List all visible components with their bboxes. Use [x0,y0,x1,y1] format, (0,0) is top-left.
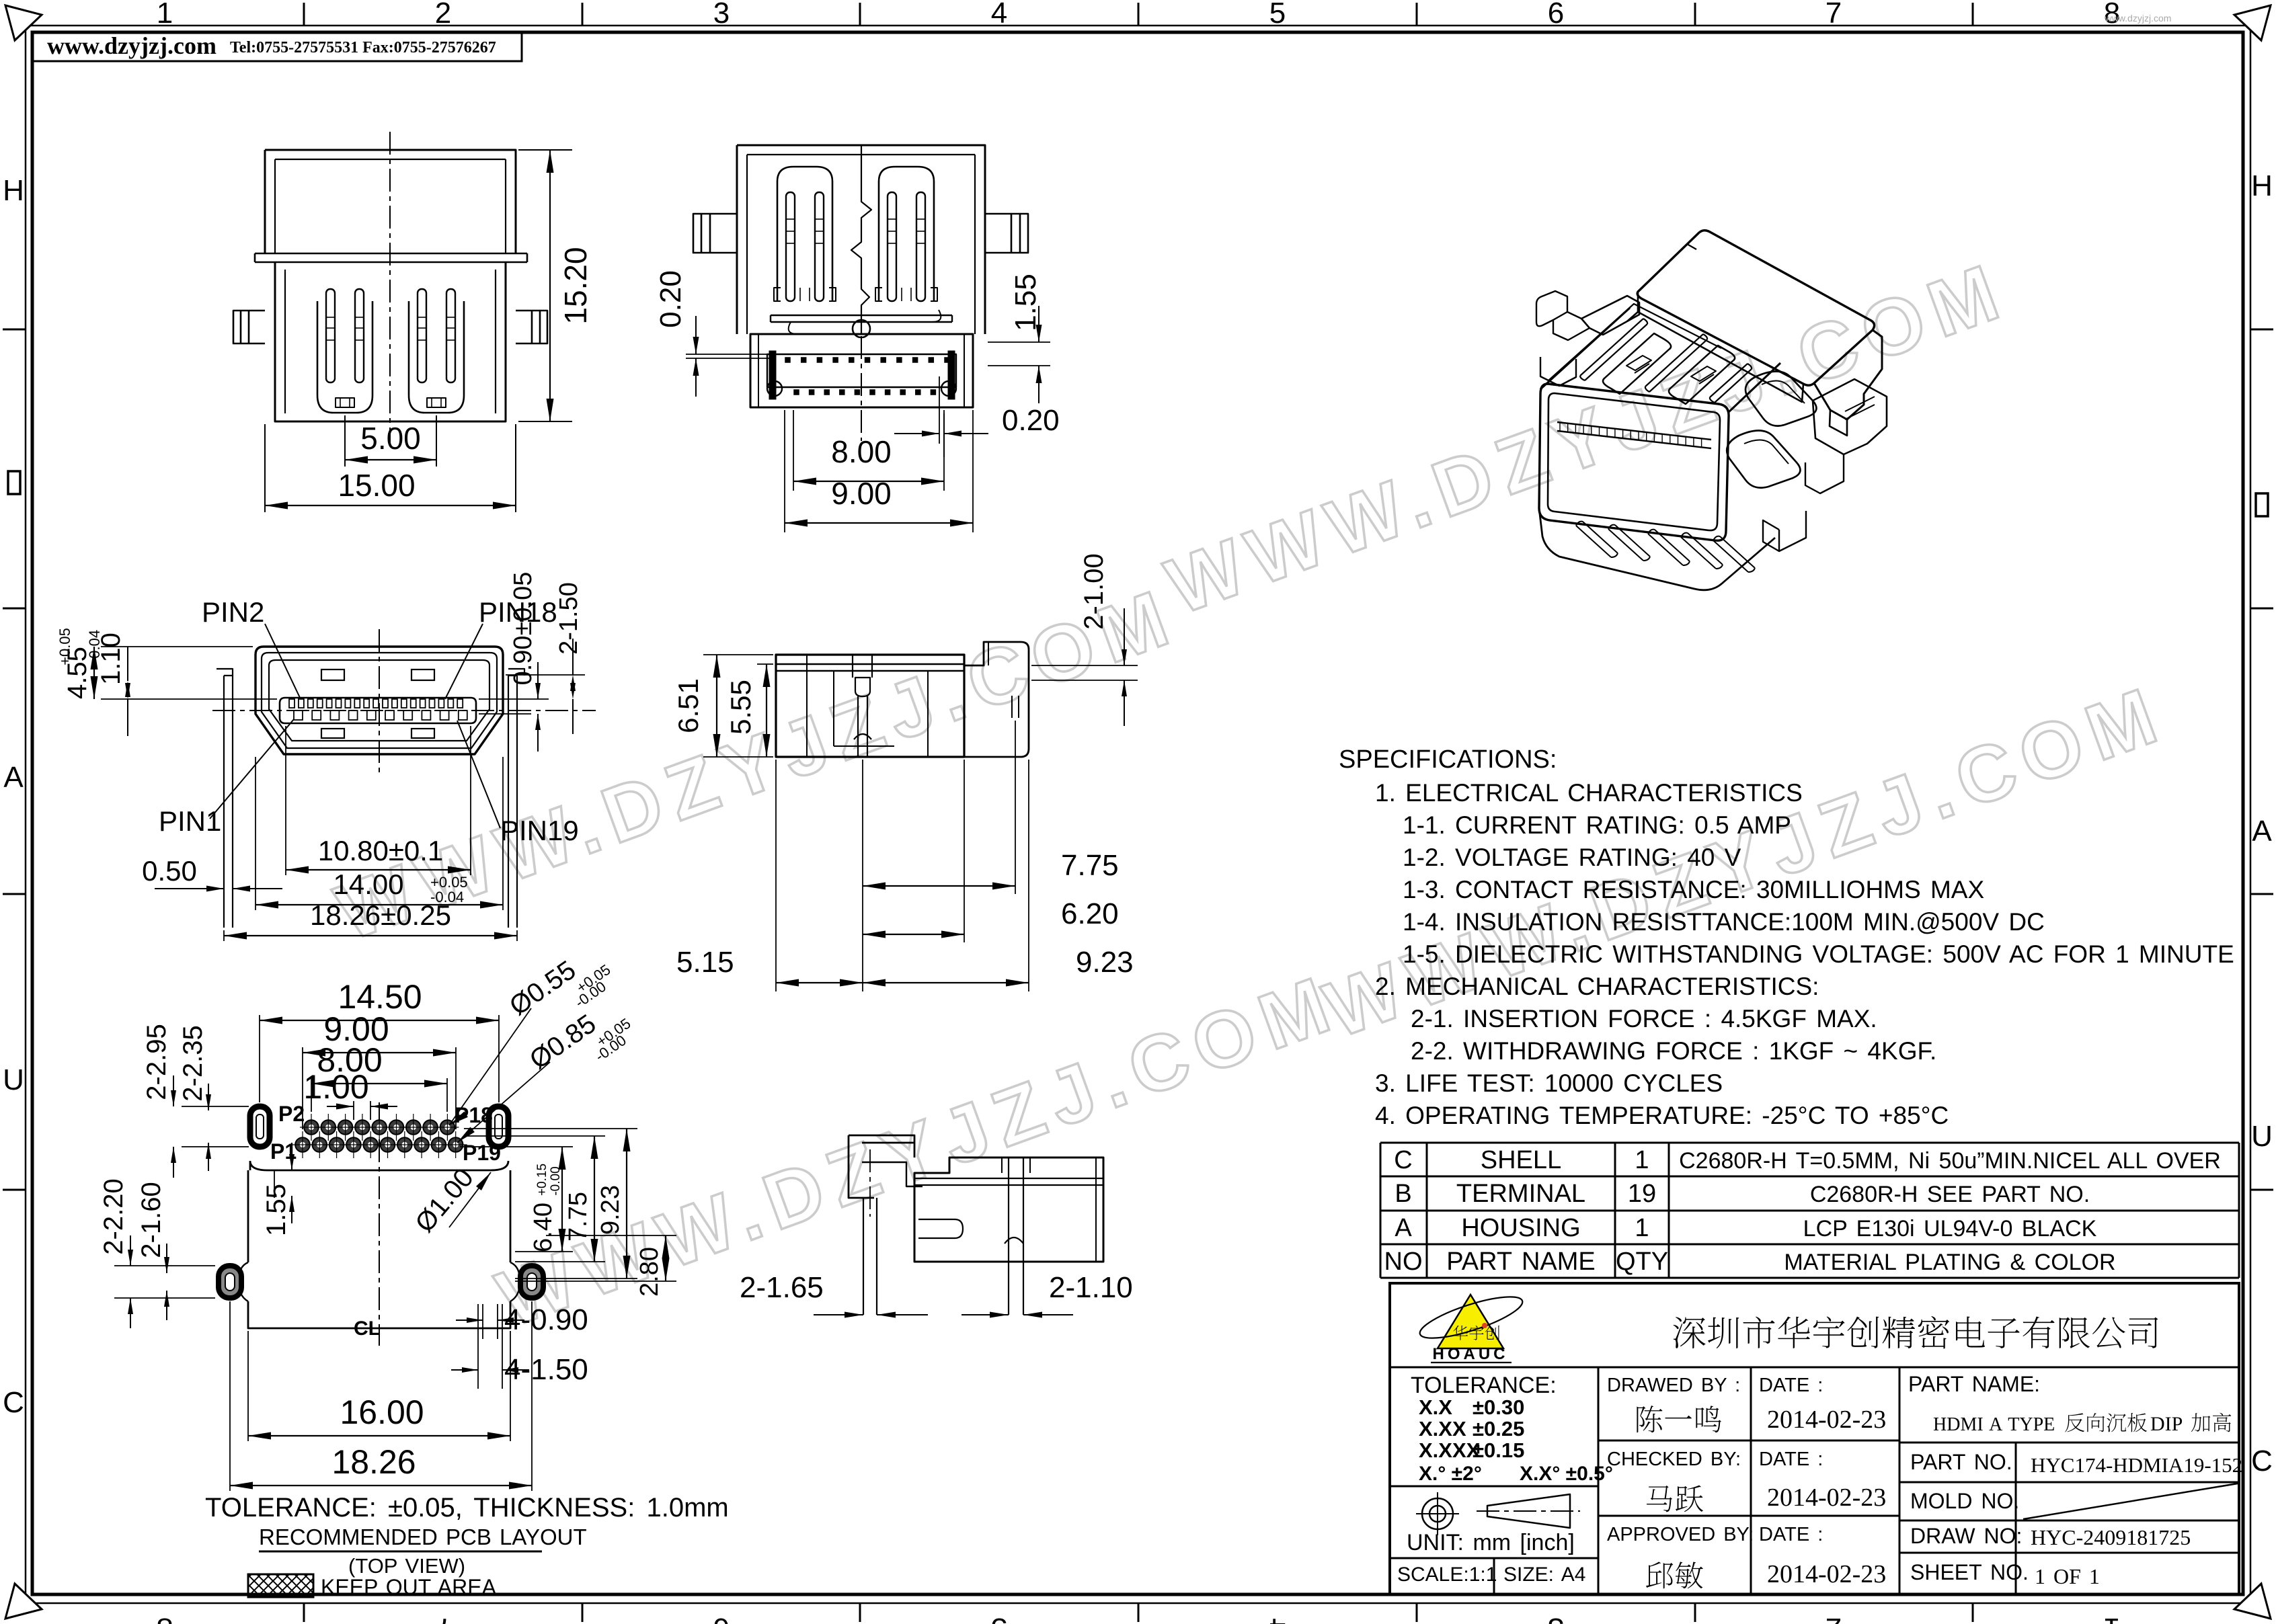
svg-text:1: 1 [1635,1146,1649,1174]
svg-text:8.00: 8.00 [831,434,892,469]
svg-text:C2680R-H SEE PART NO.: C2680R-H SEE PART NO. [1810,1182,2090,1207]
svg-text:1. ELECTRICAL CHARACTERISTIC: 1. ELECTRICAL CHARACTERISTICS [1375,779,1803,807]
svg-text:5: 5 [991,1612,1007,1624]
svg-text:2-2.95: 2-2.95 [142,1024,171,1100]
svg-text:1.00: 1.00 [303,1068,368,1106]
svg-text:6.40: 6.40 [529,1203,557,1252]
svg-text:H: H [3,174,24,207]
svg-text:CL: CL [354,1317,381,1340]
svg-text:2-2.35: 2-2.35 [178,1025,208,1101]
svg-text:18.26: 18.26 [331,1443,416,1481]
svg-text:5.15: 5.15 [676,946,734,979]
svg-text:X.XX: X.XX [1419,1417,1466,1440]
svg-text:14.00: 14.00 [333,868,403,900]
svg-text:7: 7 [1826,0,1842,30]
svg-text:UNIT: mm [inch]: UNIT: mm [inch] [1407,1530,1575,1555]
svg-text:PIN1: PIN1 [159,805,221,837]
svg-text:+0.15: +0.15 [535,1164,549,1196]
svg-text:NO: NO [1384,1248,1423,1276]
svg-text:B: B [1395,1180,1411,1208]
svg-text:X.X° ±0.5°: X.X° ±0.5° [1520,1463,1613,1485]
svg-text:SHELL: SHELL [1481,1146,1561,1174]
svg-text:1.10: 1.10 [96,633,126,685]
svg-text:PART NO.: PART NO. [1910,1450,2012,1474]
svg-text:9.00: 9.00 [831,476,892,511]
svg-text:2-2. WITHDRAWING FORCE : 1: 2-2. WITHDRAWING FORCE : 1KGF ~ 4KGF. [1411,1037,1936,1065]
svg-text:MATERIAL PLATING & COLOR: MATERIAL PLATING & COLOR [1784,1250,2115,1275]
svg-text:7.75: 7.75 [1061,849,1119,882]
svg-text:3. LIFE TEST: 10000 CYCLES: 3. LIFE TEST: 10000 CYCLES [1375,1069,1723,1097]
svg-text:1-2. VOLTAGE RATING: 40 V: 1-2. VOLTAGE RATING: 40 V [1403,844,1741,871]
svg-text:8: 8 [157,1612,173,1624]
svg-text:5.55: 5.55 [725,680,756,735]
svg-text:2: 2 [435,0,451,30]
svg-text:MOLD NO.: MOLD NO. [1910,1489,2019,1513]
svg-text:X.° ±2°: X.° ±2° [1419,1463,1482,1485]
svg-text:2-1.60: 2-1.60 [136,1182,166,1258]
svg-text:4: 4 [991,0,1007,30]
svg-text:H: H [2251,169,2273,202]
svg-text:1-3. CONTACT RESISTANCE: 30: 1-3. CONTACT RESISTANCE: 30MILLIOHMS MAX [1403,876,1984,903]
svg-text:HOUSING: HOUSING [1461,1214,1580,1242]
svg-text:CHECKED BY:: CHECKED BY: [1607,1449,1741,1470]
svg-text:SHEET NO.: SHEET NO. [1910,1560,2029,1584]
svg-text:SIZE: A4: SIZE: A4 [1503,1564,1585,1586]
svg-text:±0.25: ±0.25 [1473,1417,1524,1440]
svg-text:APPROVED BY:: APPROVED BY: [1607,1524,1754,1545]
svg-text:3: 3 [713,0,730,30]
svg-text:2.80: 2.80 [635,1247,664,1297]
svg-text:5: 5 [1269,0,1286,30]
svg-text:HYC174-HDMIA19-152: HYC174-HDMIA19-152 [2031,1453,2242,1477]
svg-text:-0.00: -0.00 [549,1166,563,1195]
svg-text:PIN2: PIN2 [202,596,264,628]
svg-text:X.X: X.X [1419,1395,1452,1419]
svg-text:HOAUC: HOAUC [1433,1345,1509,1363]
svg-text:1: 1 [1635,1214,1649,1242]
svg-text:0.50: 0.50 [142,855,197,887]
svg-text:(TOP VIEW): (TOP VIEW) [348,1554,465,1578]
svg-text:A: A [3,761,24,794]
svg-text:P2: P2 [278,1102,305,1126]
svg-text:PIN19: PIN19 [500,815,579,846]
svg-text:A: A [1395,1214,1412,1242]
svg-text:DATE :: DATE : [1759,1375,1823,1396]
svg-text:SCALE:1:1: SCALE:1:1 [1397,1564,1497,1586]
svg-text:2-2.20: 2-2.20 [99,1178,128,1254]
svg-text:DRAWED BY :: DRAWED BY : [1607,1375,1740,1396]
svg-text:19: 19 [1628,1180,1656,1208]
svg-text:0.20: 0.20 [1002,404,1060,437]
svg-text:U: U [2251,1120,2273,1153]
svg-text:KEEP OUT AREA: KEEP OUT AREA [321,1575,497,1599]
svg-text:PART NAME: PART NAME [1446,1248,1596,1276]
svg-text:www.dzyjzj.com: www.dzyjzj.com [2105,13,2172,24]
svg-text:2014-02-23: 2014-02-23 [1767,1484,1886,1512]
svg-text:7: 7 [435,1612,451,1624]
svg-text:+0.05: +0.05 [56,628,73,665]
svg-text:15.00: 15.00 [338,468,415,503]
svg-text:QTY: QTY [1616,1248,1668,1276]
svg-text:1.55: 1.55 [262,1184,291,1236]
svg-text:SPECIFICATIONS:: SPECIFICATIONS: [1339,745,1557,774]
svg-text:6.20: 6.20 [1061,897,1119,930]
svg-text:3: 3 [1548,1612,1564,1624]
svg-text:1-4. INSULATION RESISTTANCE:: 1-4. INSULATION RESISTTANCE:100M MIN.@50… [1403,908,2045,936]
svg-text:C: C [1394,1146,1412,1174]
svg-text:1: 1 [2104,1612,2120,1624]
svg-text:5.00: 5.00 [360,421,421,456]
svg-text:0.90±0.05: 0.90±0.05 [509,572,537,686]
svg-text:Tel:0755-27575531 Fax:0755-27: Tel:0755-27575531 Fax:0755-27576267 [230,39,496,56]
svg-text:1.55: 1.55 [1009,274,1042,331]
svg-text:U: U [3,1063,24,1096]
svg-text:2-1.10: 2-1.10 [1049,1271,1133,1304]
svg-text:DATE :: DATE : [1759,1449,1823,1470]
svg-text:www.dzyjzj.com: www.dzyjzj.com [47,32,217,59]
svg-text:7.75: 7.75 [564,1192,592,1242]
svg-text:6.51: 6.51 [672,678,704,733]
svg-text:A: A [2252,815,2272,848]
svg-text:TOLERANCE: ±0.05, THICKNESS:: TOLERANCE: ±0.05, THICKNESS: 1.0mm [205,1493,729,1522]
svg-text:TOLERANCE:: TOLERANCE: [1411,1373,1557,1398]
svg-text:DATE :: DATE : [1759,1524,1823,1545]
svg-text:RECOMMENDED PCB LAYOUT: RECOMMENDED PCB LAYOUT [259,1525,587,1549]
svg-text:9.23: 9.23 [596,1185,625,1235]
svg-text:9.23: 9.23 [1076,946,1134,979]
svg-text:LCP E130i UL94V-0 BLACK: LCP E130i UL94V-0 BLACK [1803,1216,2097,1242]
svg-text:HYC-2409181725: HYC-2409181725 [2031,1525,2191,1549]
svg-text:6: 6 [713,1612,730,1624]
svg-text:15.20: 15.20 [558,247,593,324]
svg-text:±0.30: ±0.30 [1473,1395,1524,1419]
svg-text:4: 4 [1269,1612,1286,1624]
svg-text:1: 1 [157,0,173,30]
svg-text:18.26±0.25: 18.26±0.25 [310,899,451,931]
svg-text:2: 2 [1826,1612,1842,1624]
svg-text:2014-02-23: 2014-02-23 [1767,1560,1886,1588]
svg-text:HDMI A TYPE: HDMI A TYPE [1933,1414,2055,1435]
svg-text:2. MECHANICAL CHARACTERISTIC: 2. MECHANICAL CHARACTERISTICS: [1375,973,1819,1000]
svg-text:2-1.65: 2-1.65 [740,1271,824,1304]
svg-text:2014-02-23: 2014-02-23 [1767,1406,1886,1434]
svg-text:X.XXX: X.XXX [1419,1438,1481,1462]
svg-text:2-1. INSERTION FORCE : 4.5: 2-1. INSERTION FORCE : 4.5KGF MAX. [1411,1005,1877,1032]
svg-text:C2680R-H T=0.5MM, Ni 50u”MI: C2680R-H T=0.5MM, Ni 50u”MIN.NICEL ALL O… [1679,1148,2221,1174]
svg-text:1 OF 1: 1 OF 1 [2035,1564,2100,1588]
svg-text:4. OPERATING TEMPERATURE: -: 4. OPERATING TEMPERATURE: -25°C TO +85°C [1375,1102,1949,1129]
svg-text:0.20: 0.20 [654,270,687,328]
svg-text:2-1.00: 2-1.00 [1079,553,1109,629]
svg-text:±0.15: ±0.15 [1473,1438,1524,1462]
svg-text:C: C [2251,1445,2273,1477]
svg-text:1-5. DIELECTRIC WITHSTANDING: 1-5. DIELECTRIC WITHSTANDING VOLTAGE: 50… [1403,940,2234,968]
svg-text:16.00: 16.00 [340,1393,424,1431]
svg-text:DIP: DIP [2150,1413,2183,1435]
svg-text:10.80±0.1: 10.80±0.1 [318,835,444,866]
svg-text:2-1.50: 2-1.50 [555,582,583,655]
svg-text:6: 6 [1548,0,1564,30]
svg-text:TERMINAL: TERMINAL [1456,1180,1585,1208]
svg-text:1-1. CURRENT RATING: 0.5 A: 1-1. CURRENT RATING: 0.5 AMP [1403,811,1791,839]
svg-text:DRAW NO:: DRAW NO: [1910,1524,2022,1548]
svg-text:PART NAME:: PART NAME: [1908,1372,2040,1396]
svg-text:C: C [3,1386,24,1419]
